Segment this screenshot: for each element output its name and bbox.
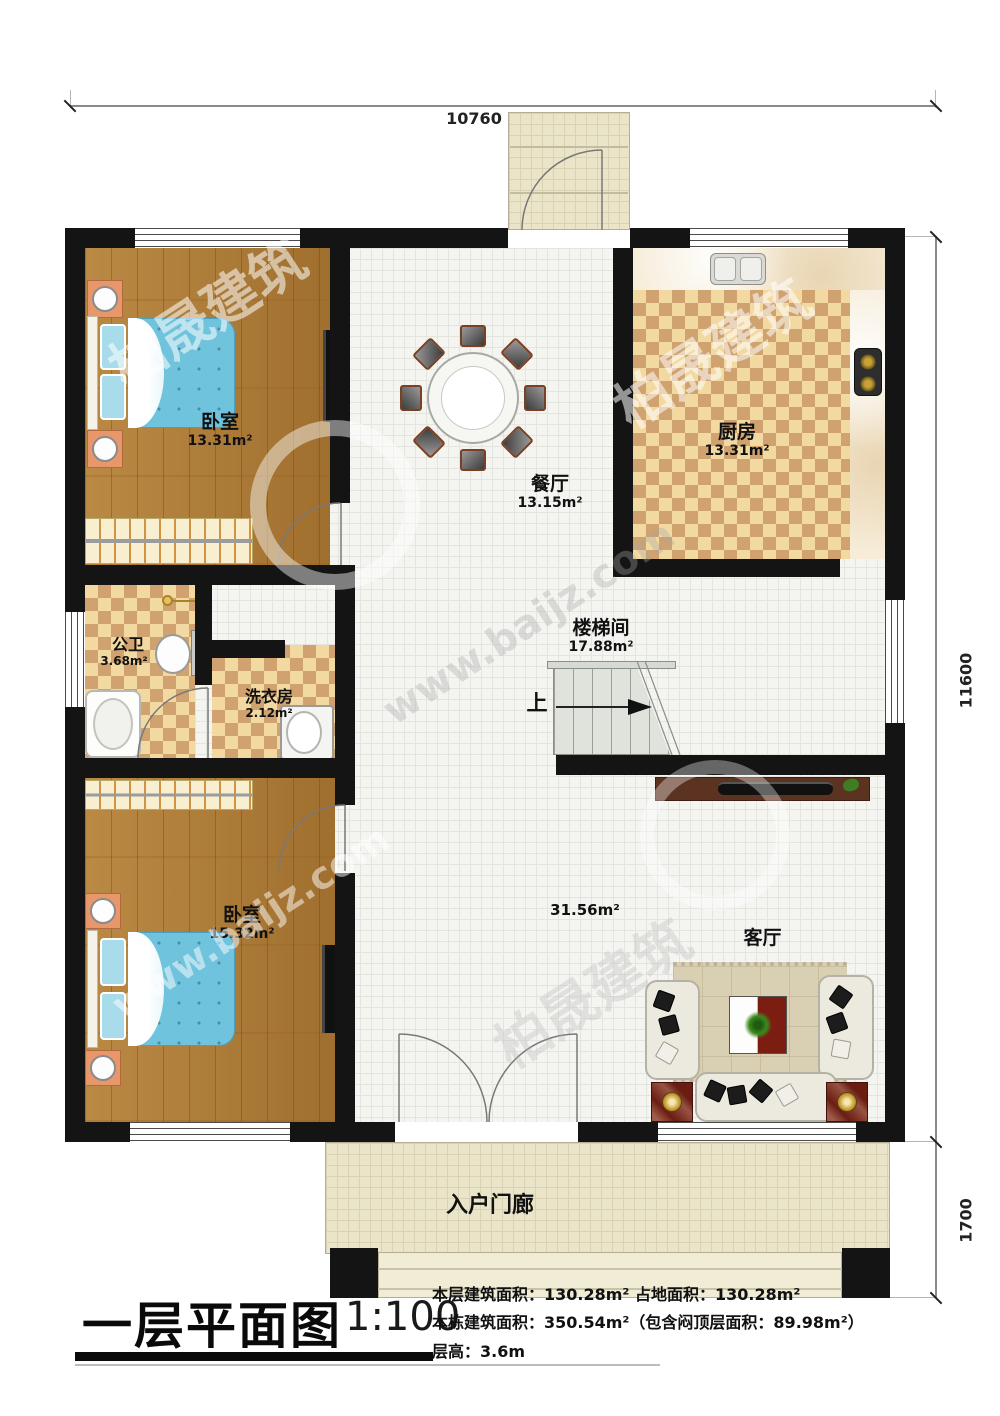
room-area: 3.68m²: [88, 655, 160, 668]
room-area: 15.32m²: [177, 927, 307, 942]
dimension-line-right-porch: [935, 1142, 937, 1298]
watermark-ring: [250, 420, 420, 590]
room-label: 洗衣房: [215, 688, 323, 706]
info-line: 本层建筑面积：130.28m² 占地面积：130.28m²: [432, 1281, 992, 1305]
room-area: 13.31m²: [155, 434, 285, 449]
stair-up-arrow: [556, 699, 652, 715]
dimension-line-top: [70, 105, 936, 107]
dimension-value-right-porch: 1700: [957, 1186, 976, 1256]
info-line: 本栋建筑面积：350.54m²（包含闷顶层面积：89.98m²）: [432, 1309, 992, 1333]
stair-break-line: [645, 661, 680, 755]
title-underline: [75, 1352, 433, 1361]
watermark-ring: [640, 760, 790, 910]
entry-door-arc-left: [399, 1034, 487, 1122]
back-porch-door-arc: [522, 150, 602, 230]
room-area: 2.12m²: [215, 707, 323, 720]
room-area: 13.31m²: [682, 444, 792, 459]
title-underline-thin: [75, 1364, 660, 1366]
room-label: 卧室: [155, 412, 285, 433]
bedroom-bottom-door-arc: [279, 805, 345, 871]
room-area: 31.56m²: [530, 902, 640, 919]
dimension-line-right: [935, 237, 937, 1142]
room-label: 公卫: [92, 636, 164, 654]
stair-up-label: 上: [524, 692, 550, 715]
page-title: 一层平面图: [82, 1286, 352, 1358]
extension-line: [905, 236, 937, 237]
room-label: 卧室: [177, 905, 307, 926]
entry-door-arc-right: [489, 1034, 577, 1122]
room-label: 餐厅: [495, 474, 605, 495]
room-label: 厨房: [682, 422, 792, 443]
room-label: 入户门廊: [425, 1194, 555, 1218]
bathroom-door-arc: [138, 688, 208, 758]
room-label: 客厅: [710, 928, 815, 949]
room-area: 13.15m²: [495, 496, 605, 511]
room-label: 楼梯间: [541, 618, 661, 639]
extension-line: [905, 1141, 937, 1142]
dimension-value-top: 10760: [440, 109, 508, 128]
floor-plan: 卧室 13.31m² 餐厅 13.15m² 厨房 13.31m² 公卫 3.68…: [0, 0, 1000, 1416]
info-line: 层高：3.6m: [432, 1338, 992, 1362]
room-area: 17.88m²: [541, 640, 661, 655]
dimension-value-right: 11600: [957, 646, 976, 716]
